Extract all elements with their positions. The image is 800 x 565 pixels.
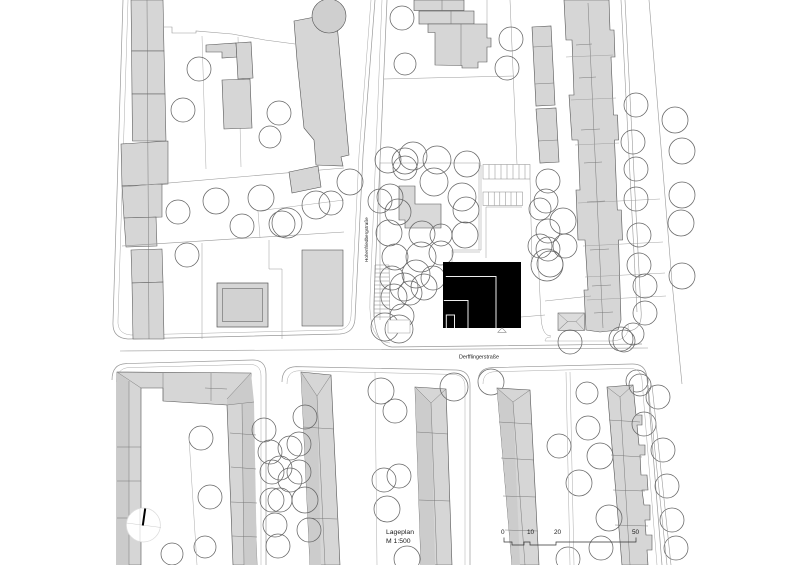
svg-text:10: 10: [527, 529, 535, 536]
svg-text:Lageplan: Lageplan: [386, 529, 414, 536]
svg-text:50: 50: [632, 529, 640, 536]
svg-text:Hohenfriedbergstraße: Hohenfriedbergstraße: [364, 217, 369, 262]
svg-text:20: 20: [554, 529, 562, 536]
svg-text:M 1:500: M 1:500: [386, 538, 411, 545]
svg-text:0: 0: [501, 529, 505, 536]
svg-text:Derfflingerstraße: Derfflingerstraße: [459, 355, 499, 361]
